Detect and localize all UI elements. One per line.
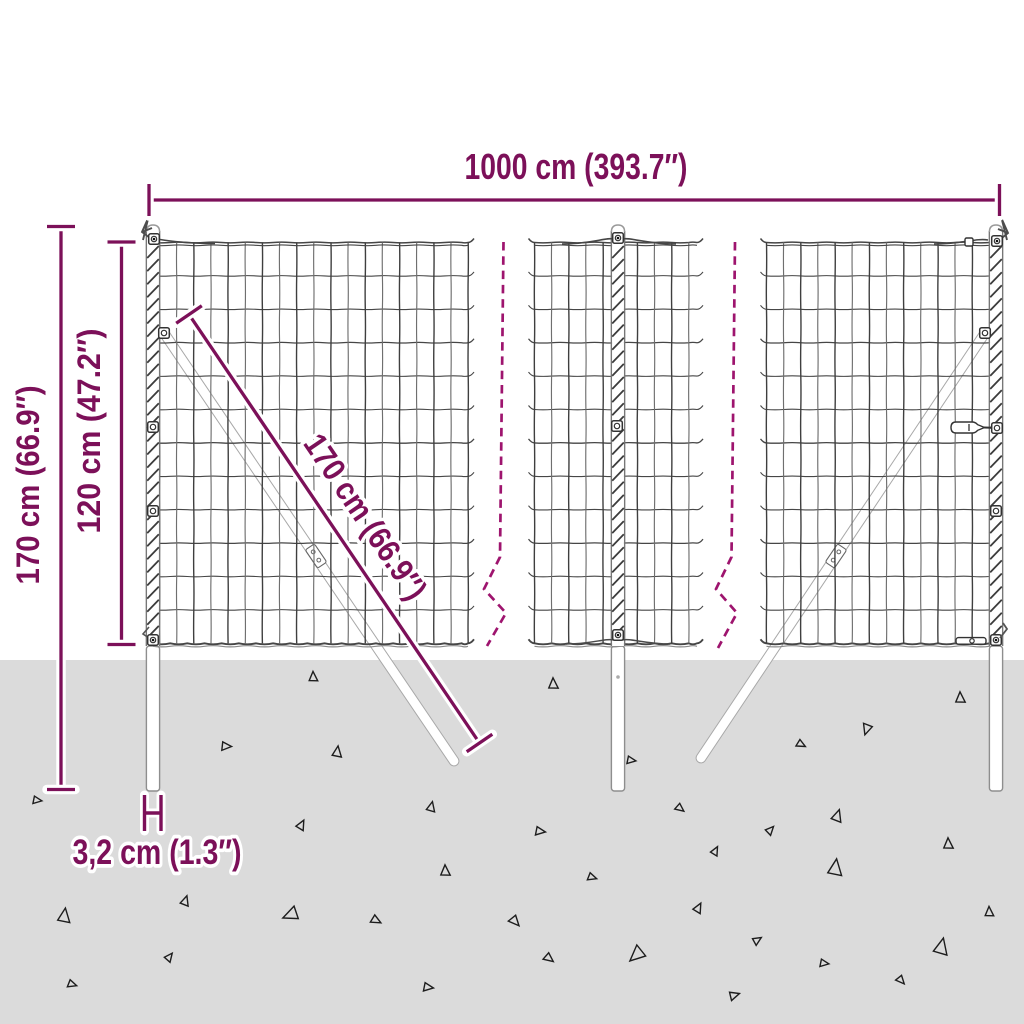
svg-text:120 cm (47.2″): 120 cm (47.2″) xyxy=(71,329,107,534)
svg-text:1000 cm (393.7″): 1000 cm (393.7″) xyxy=(465,146,688,187)
svg-text:170 cm (66.9″): 170 cm (66.9″) xyxy=(10,386,46,585)
svg-text:3,2 cm (1.3″): 3,2 cm (1.3″) xyxy=(73,832,242,872)
